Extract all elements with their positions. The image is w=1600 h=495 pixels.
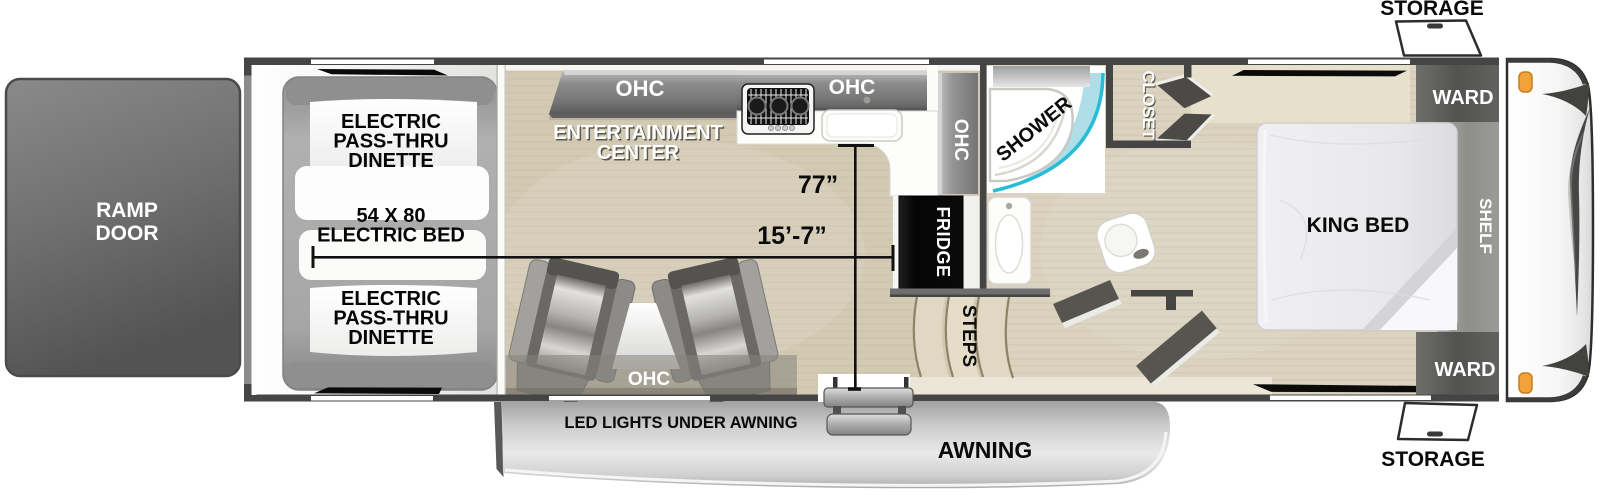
svg-text:STORAGE: STORAGE [1380,0,1483,20]
svg-text:WARD: WARD [1434,359,1495,381]
svg-text:ELECTRIC BED: ELECTRIC BED [317,225,465,247]
svg-text:AWNING: AWNING [938,437,1033,463]
svg-text:DINETTE: DINETTE [348,150,434,172]
svg-text:FRIDGE: FRIDGE [933,206,953,277]
svg-text:ENTERTAINMENT: ENTERTAINMENT [553,122,723,144]
svg-text:OHC: OHC [628,369,671,390]
svg-text:DOOR: DOOR [96,222,159,245]
svg-text:RAMP: RAMP [96,199,158,222]
svg-text:OHC: OHC [950,119,971,162]
svg-text:LED LIGHTS UNDER AWNING: LED LIGHTS UNDER AWNING [564,414,797,432]
svg-text:KING BED: KING BED [1307,214,1410,237]
svg-text:OHC: OHC [616,76,665,101]
svg-text:OHC: OHC [829,76,876,99]
svg-text:15’-7”: 15’-7” [757,222,826,250]
svg-text:STORAGE: STORAGE [1381,448,1484,471]
svg-text:CLOSET: CLOSET [1139,71,1158,141]
svg-text:77”: 77” [798,171,838,199]
svg-text:SHELF: SHELF [1476,198,1495,254]
svg-text:DINETTE: DINETTE [348,327,434,349]
svg-text:CENTER: CENTER [597,142,680,164]
svg-text:WARD: WARD [1432,87,1493,109]
svg-text:STEPS: STEPS [958,305,979,367]
